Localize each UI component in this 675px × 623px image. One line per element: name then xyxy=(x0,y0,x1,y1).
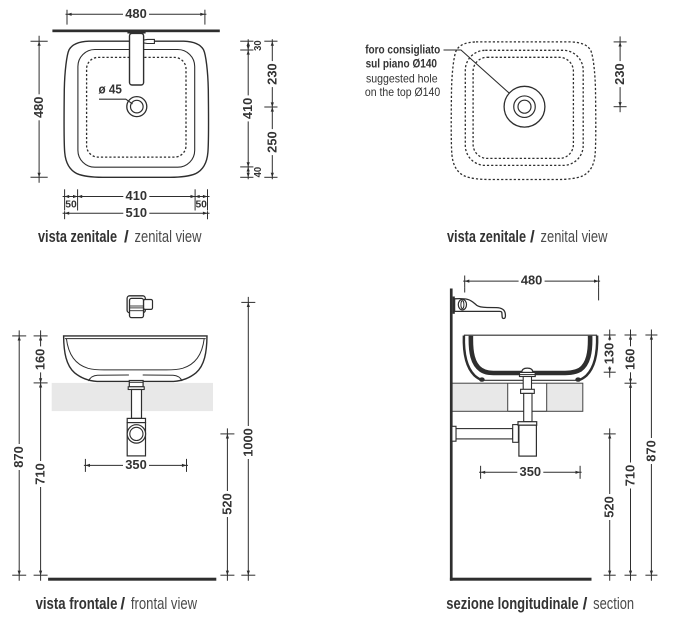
svg-text:1000: 1000 xyxy=(241,428,255,457)
svg-text:480: 480 xyxy=(32,97,46,119)
svg-text:40: 40 xyxy=(252,167,264,178)
svg-text:350: 350 xyxy=(520,465,542,479)
svg-text:/: / xyxy=(530,227,535,246)
svg-text:480: 480 xyxy=(125,7,147,21)
svg-text:710: 710 xyxy=(624,465,638,487)
svg-text:ø 45: ø 45 xyxy=(99,83,122,97)
svg-text:sezione longitudinale: sezione longitudinale xyxy=(446,594,578,613)
svg-text:vista zenitale: vista zenitale xyxy=(447,227,526,246)
svg-text:510: 510 xyxy=(126,206,148,220)
svg-text:160: 160 xyxy=(624,349,638,371)
svg-text:160: 160 xyxy=(34,349,48,371)
svg-text:230: 230 xyxy=(613,63,627,85)
svg-text:520: 520 xyxy=(603,496,617,518)
svg-text:30: 30 xyxy=(252,40,264,51)
svg-text:250: 250 xyxy=(265,131,279,153)
svg-text:suggested hole: suggested hole xyxy=(366,71,438,85)
svg-text:50: 50 xyxy=(65,199,77,211)
svg-text:foro consigliato: foro consigliato xyxy=(365,43,440,57)
svg-text:480: 480 xyxy=(521,274,543,288)
svg-text:50: 50 xyxy=(195,199,207,211)
svg-text:on the top Ø140: on the top Ø140 xyxy=(365,85,441,99)
svg-text:520: 520 xyxy=(220,493,234,515)
svg-text:zenital view: zenital view xyxy=(541,227,609,246)
svg-text:350: 350 xyxy=(125,458,147,472)
svg-text:870: 870 xyxy=(12,446,26,468)
svg-text:410: 410 xyxy=(126,189,148,203)
svg-text:710: 710 xyxy=(34,463,48,485)
svg-text:vista frontale: vista frontale xyxy=(36,594,118,613)
svg-text:130: 130 xyxy=(603,343,617,365)
svg-text:vista zenitale: vista zenitale xyxy=(38,227,117,246)
svg-text:870: 870 xyxy=(644,440,658,462)
svg-text:sul piano Ø140: sul piano Ø140 xyxy=(366,56,438,70)
svg-text:section: section xyxy=(593,594,634,613)
svg-text:410: 410 xyxy=(241,98,255,120)
svg-text:zenital view: zenital view xyxy=(135,227,203,246)
svg-text:/: / xyxy=(124,227,129,246)
svg-text:/: / xyxy=(120,594,125,613)
svg-text:frontal view: frontal view xyxy=(131,594,198,613)
svg-text:/: / xyxy=(583,594,588,613)
svg-text:230: 230 xyxy=(265,63,279,85)
